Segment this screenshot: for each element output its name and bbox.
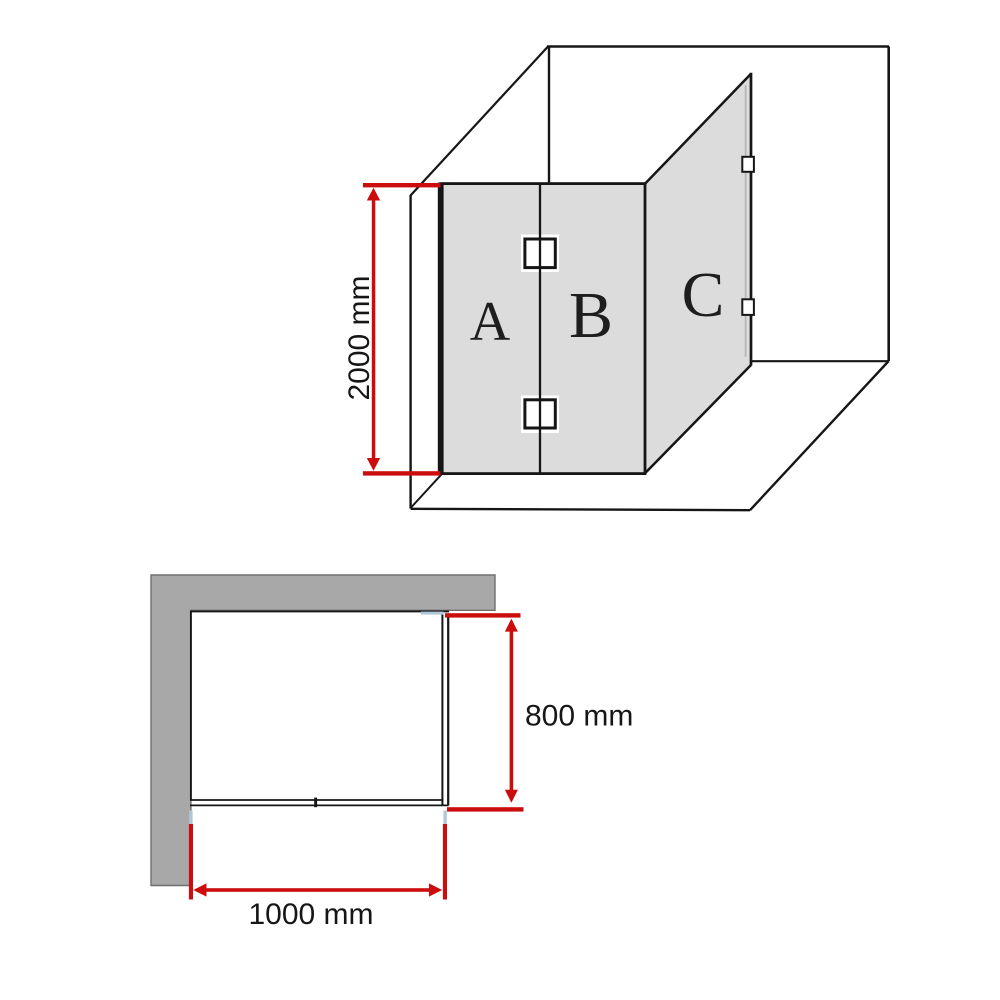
return-dimension: 800 mm [445,613,633,811]
return-dim-arrowhead-down-icon [505,790,518,803]
height-dimension: 2000 mm [343,183,441,476]
isometric-view: C A B 2000 mm [343,47,889,511]
panel-c-label: C [682,259,725,330]
wall-bracket-top [742,157,754,172]
return-dimension-label: 800 mm [525,700,633,733]
width-dim-arrowhead-left-icon [193,883,206,896]
width-dim-right-bar [443,824,447,900]
panel-b-label: B [569,279,613,352]
width-dim-arrowhead-right-icon [429,883,442,896]
width-dimension: 1000 mm [189,824,447,931]
plan-return-glass [442,613,448,805]
panel-a-label: A [470,291,511,353]
return-dim-top-bar [445,613,521,617]
panel-a-b: A B [441,183,645,476]
panel-joint-tick [314,798,317,808]
return-dim-bottom-bar [447,807,524,811]
height-dim-arrowhead-down-icon [367,458,380,471]
plan-view: 1000 mm 800 mm [151,575,633,931]
height-dim-top-bar [363,183,441,187]
seal-mark-left [189,811,192,825]
seal-mark-right [443,811,446,825]
plan-front-glass [190,798,449,808]
width-dim-arrow-line [204,888,432,892]
height-dimension-label: 2000 mm [343,275,376,400]
return-dim-arrow-line [510,630,514,791]
plan-enclosure-outline [190,611,449,800]
room-left-top-diagonal [411,47,549,196]
seal-marks [189,612,447,824]
height-dim-bottom-bar [363,471,441,475]
height-dim-arrowhead-up-icon [367,188,380,201]
width-dim-left-bar [189,824,193,900]
room-floor-front-edge [411,509,750,510]
diagram-svg: C A B 2000 mm [0,0,1000,1000]
seal-mark-top [421,612,444,615]
shower-screen-dimension-diagram: C A B 2000 mm [0,0,1000,1000]
wall-bracket-bottom [742,299,754,315]
room-floor-right-diagonal [750,361,889,510]
panel-c: C [645,73,754,474]
return-dim-arrowhead-up-icon [505,619,518,632]
room-floor-left-diagonal [411,474,442,508]
width-dimension-label: 1000 mm [248,898,373,931]
